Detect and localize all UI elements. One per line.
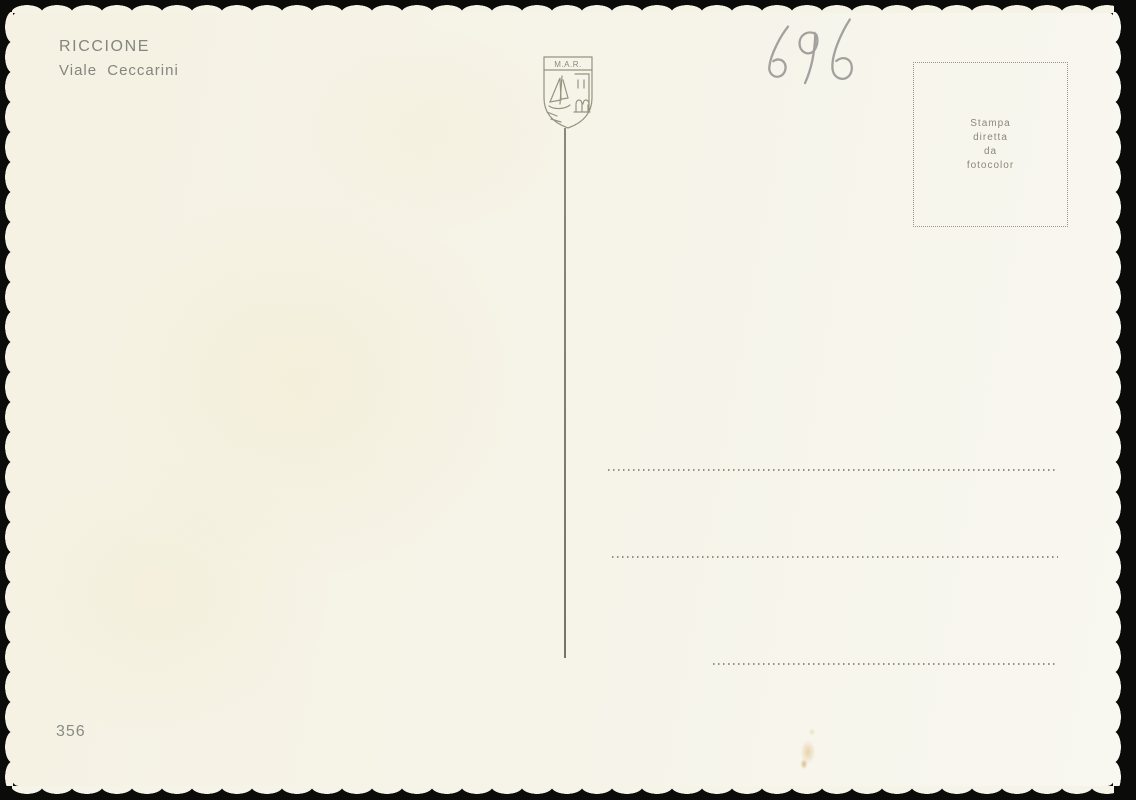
handwritten-number-696: [751, 12, 864, 96]
stamp-box-line-1: Stampa: [970, 117, 1010, 131]
location-subtitle: Viale Ceccarini: [59, 62, 179, 79]
stamp-box: Stampa diretta da fotocolor: [913, 62, 1068, 227]
location-title: RICCIONE: [59, 38, 179, 56]
address-line-1: [608, 469, 1058, 471]
pencil-digit-9: [799, 32, 819, 83]
deckled-edge-right: [1113, 12, 1121, 786]
publisher-shield-emblem: M.A.R.: [537, 54, 599, 132]
deckled-edge-bottom: [12, 786, 1114, 794]
stamp-box-line-3: da: [984, 145, 997, 159]
address-line-3: [713, 663, 1058, 665]
address-line-2: [612, 556, 1058, 558]
stamp-box-line-4: fotocolor: [967, 159, 1014, 173]
scanned-postcard-back: RICCIONE Viale Ceccarini M.A.R. 696 Stam…: [0, 0, 1136, 800]
pencil-digit-6: [768, 27, 790, 77]
location-caption: RICCIONE Viale Ceccarini: [59, 38, 179, 79]
stamp-box-line-2: diretta: [973, 131, 1008, 145]
catalog-number: 356: [56, 723, 86, 741]
emblem-text: M.A.R.: [554, 60, 581, 69]
deckled-edge-left: [5, 12, 13, 786]
center-divider-line: [564, 128, 566, 658]
pencil-digit-6b: [831, 19, 852, 79]
deckled-edge-top: [12, 5, 1114, 13]
